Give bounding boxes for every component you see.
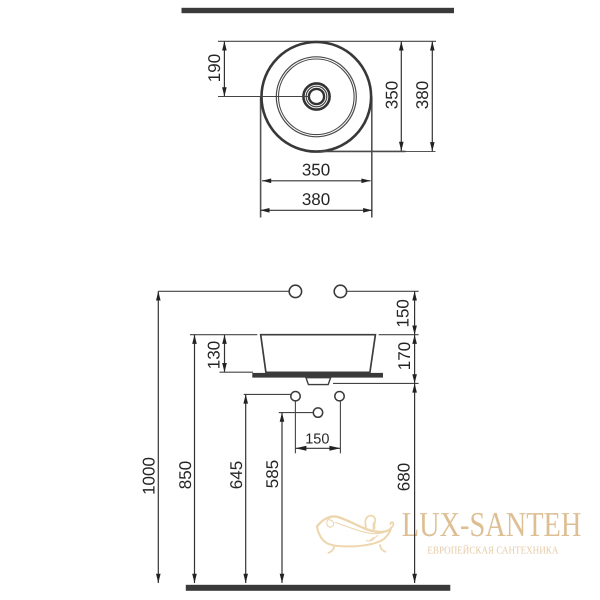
svg-text:850: 850 [176, 461, 195, 489]
svg-text:380: 380 [302, 190, 330, 209]
svg-text:585: 585 [263, 460, 282, 488]
svg-text:350: 350 [302, 161, 330, 180]
svg-text:LUX-SANTEH: LUX-SANTEH [402, 505, 582, 544]
svg-text:150: 150 [305, 431, 329, 447]
svg-text:190: 190 [205, 54, 224, 82]
svg-text:645: 645 [227, 461, 246, 489]
svg-text:130: 130 [204, 341, 223, 369]
svg-text:170: 170 [395, 342, 414, 370]
svg-text:ЕВРОПЕЙСКАЯ САНТЕХНИКА: ЕВРОПЕЙСКАЯ САНТЕХНИКА [427, 545, 558, 557]
svg-text:380: 380 [413, 81, 432, 109]
svg-text:680: 680 [395, 463, 414, 491]
svg-text:150: 150 [394, 299, 413, 327]
svg-text:350: 350 [382, 81, 401, 109]
svg-text:1000: 1000 [139, 457, 158, 495]
